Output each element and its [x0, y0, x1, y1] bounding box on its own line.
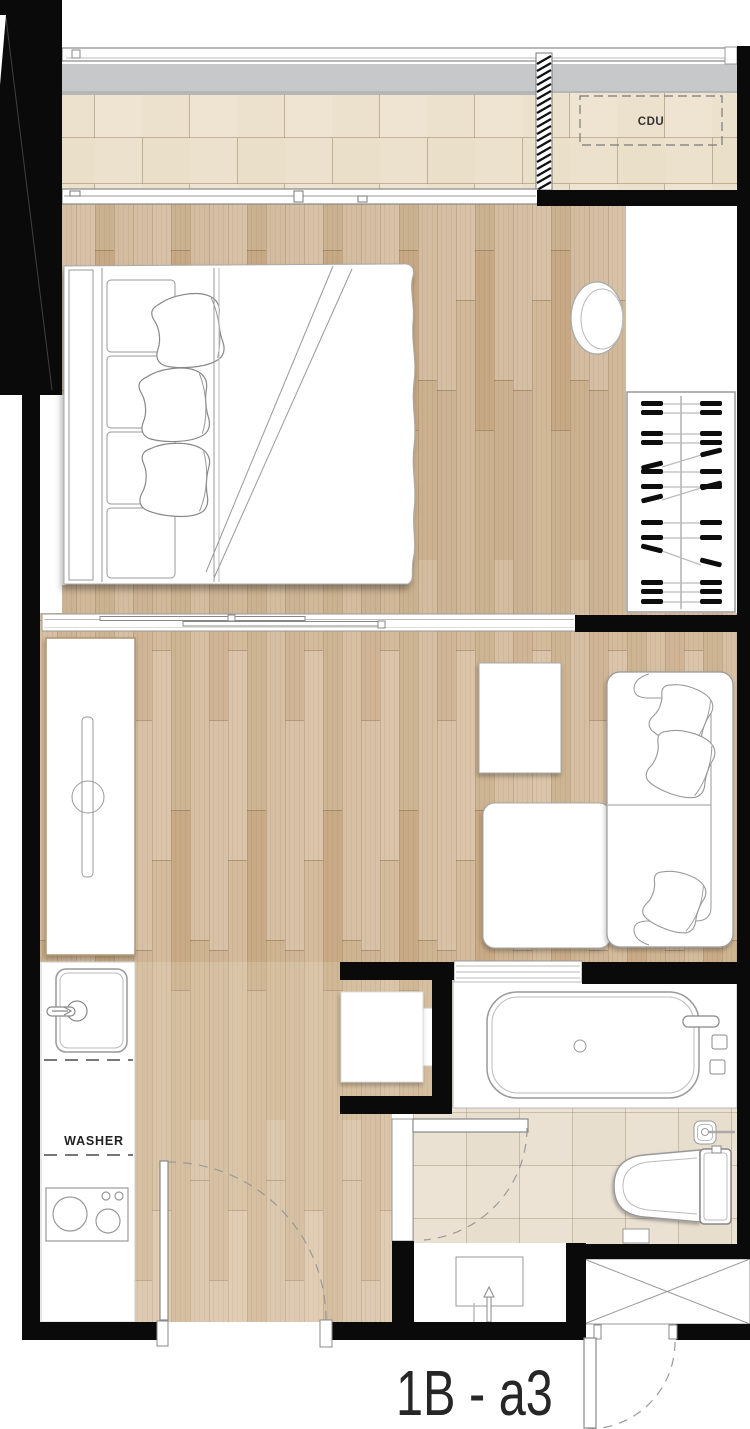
svg-text:CDU: CDU	[638, 116, 664, 128]
svg-text:1B - a3: 1B - a3	[396, 1359, 553, 1429]
svg-text:WASHER: WASHER	[64, 1134, 124, 1148]
